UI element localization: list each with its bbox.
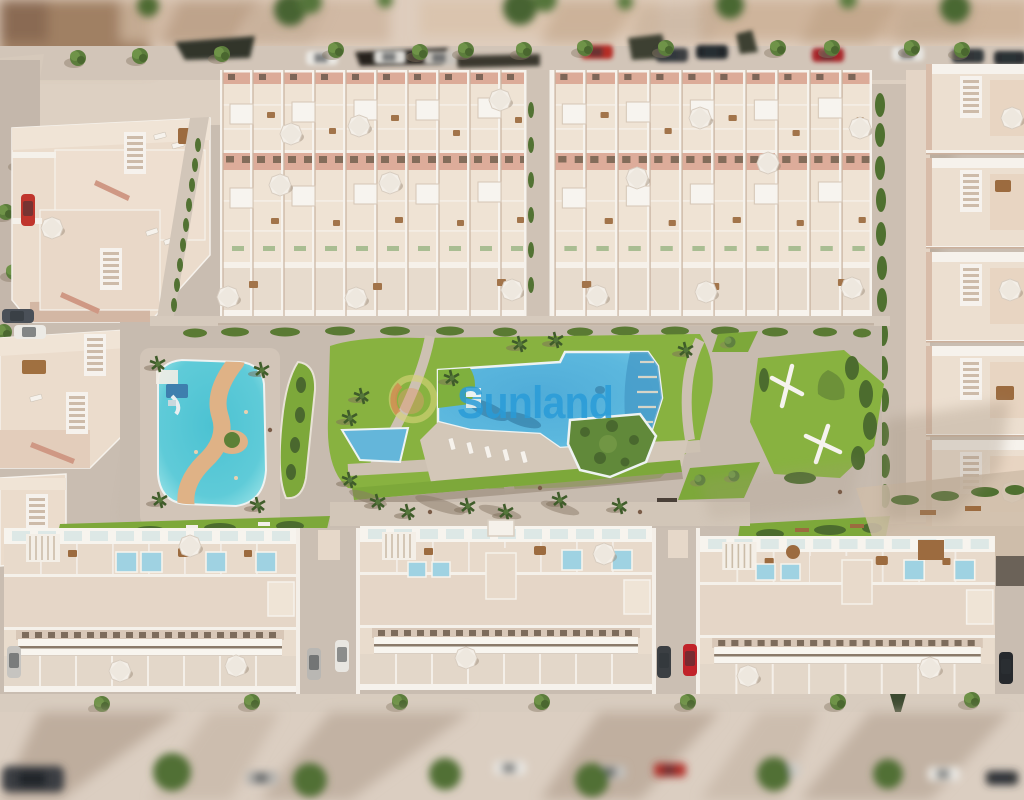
- svg-text:Sunland: Sunland: [457, 377, 613, 428]
